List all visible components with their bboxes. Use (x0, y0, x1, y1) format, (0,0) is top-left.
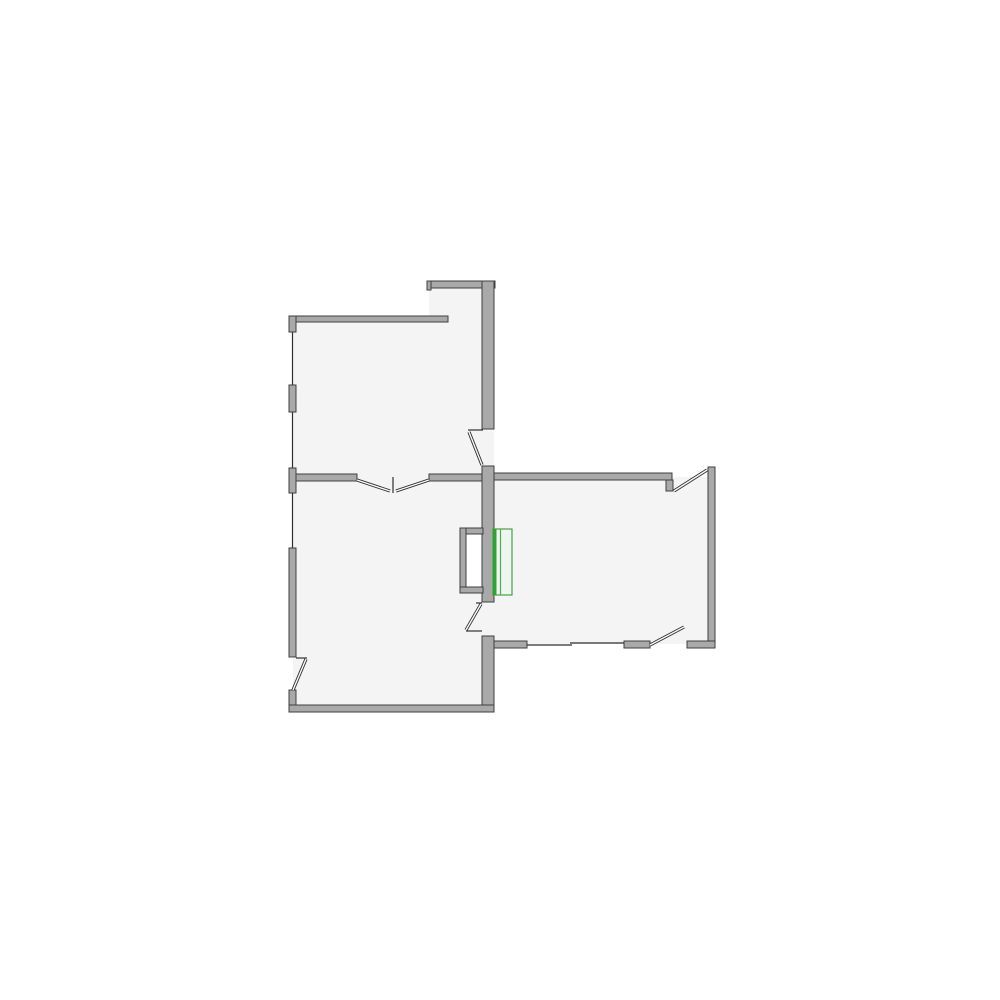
wall-left-block-1 (289, 316, 296, 332)
wall-right-room-bottom-mid (624, 641, 650, 648)
doorway-upper-spine (482, 429, 494, 466)
floor-plan (0, 0, 1000, 1000)
wall-right-room-bottom-corner (687, 641, 715, 648)
wall-interior-left (296, 474, 357, 481)
room-right (486, 477, 712, 644)
wall-right-room-right (708, 467, 715, 648)
wall-alcove-end-cap (427, 281, 431, 290)
wall-right-top-door-notch (666, 480, 673, 491)
wall-spine-bottom (482, 636, 494, 712)
wall-bottomleft-bottom (289, 705, 494, 712)
wall-topleft-top (289, 316, 448, 322)
wall-niche-bottom (460, 587, 483, 593)
room-top-left (293, 320, 486, 481)
wall-right-room-top (494, 473, 672, 480)
room-bottom-left (293, 474, 486, 708)
wall-spine-mid (482, 466, 494, 602)
wall-niche-interior (466, 534, 483, 587)
wall-niche-left (460, 528, 466, 593)
wall-interior-right (429, 474, 483, 481)
wall-right-room-bottom-left (494, 641, 527, 648)
wall-left-block-4 (289, 548, 296, 657)
wall-spine-top (482, 281, 494, 429)
doorway-lower-spine (482, 602, 494, 636)
floor-plan-page (0, 0, 1000, 1000)
wall-left-block-2 (289, 385, 296, 412)
wall-left-block-3 (289, 468, 296, 493)
radiator-accent-edge (493, 529, 497, 595)
